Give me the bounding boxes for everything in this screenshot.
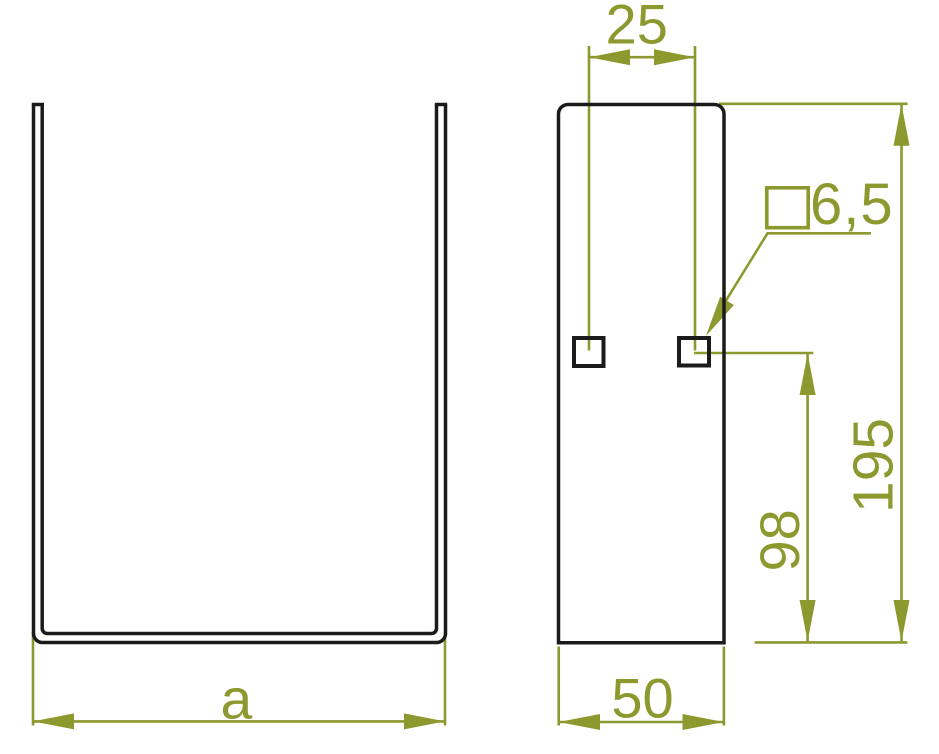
svg-text:6,5: 6,5 <box>810 172 894 237</box>
svg-text:195: 195 <box>842 418 906 513</box>
svg-text:a: a <box>221 668 253 732</box>
svg-text:25: 25 <box>606 0 668 56</box>
svg-text:50: 50 <box>611 667 673 730</box>
svg-text:98: 98 <box>748 509 811 571</box>
